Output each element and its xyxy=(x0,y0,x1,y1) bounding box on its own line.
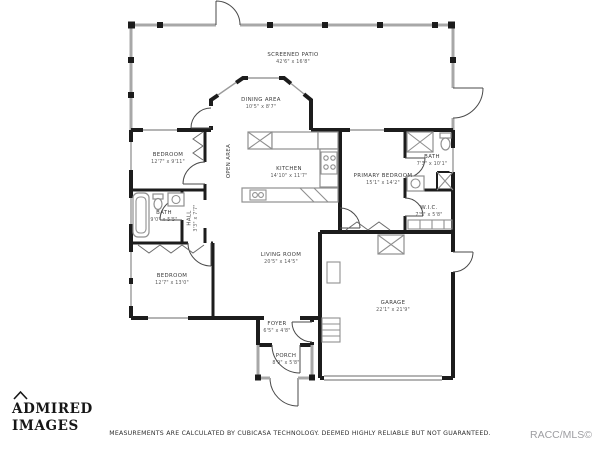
svg-text:BATH: BATH xyxy=(156,210,172,216)
svg-text:KITCHEN: KITCHEN xyxy=(276,166,302,172)
svg-text:10'5" x 8'7": 10'5" x 8'7" xyxy=(246,104,277,110)
room-label-bath-1: BATH 9'0" x 5'5" xyxy=(150,210,177,223)
shower-icon xyxy=(407,132,433,152)
room-label-dining-area: DINING AREA 10'5" x 8'7" xyxy=(241,97,281,110)
toilet-icon xyxy=(440,133,451,150)
garage-door xyxy=(324,373,442,383)
porch-door-arc xyxy=(270,378,298,406)
svg-text:FOYER: FOYER xyxy=(267,321,286,327)
svg-text:BEDROOM: BEDROOM xyxy=(153,152,184,158)
bedroom2-closet-icon xyxy=(138,245,204,253)
svg-text:3'3" x 7'7": 3'3" x 7'7" xyxy=(193,204,199,231)
svg-text:PORCH: PORCH xyxy=(276,353,297,359)
bedroom2-door-arc xyxy=(188,243,211,266)
patio-side-door-arc xyxy=(453,88,483,118)
bedroom1-door-arc xyxy=(183,162,205,184)
refrigerator-icon xyxy=(248,132,272,149)
room-label-bedroom-2: BEDROOM 12'7" x 13'0" xyxy=(155,273,189,286)
patio-screen-door-arc xyxy=(216,1,240,25)
svg-text:BEDROOM: BEDROOM xyxy=(157,273,188,279)
kitchen-counter xyxy=(272,132,318,149)
floor-plan-page: SCREENED PATIO 42'6" x 16'8" DINING AREA… xyxy=(0,0,600,450)
svg-text:BATH: BATH xyxy=(424,154,440,160)
svg-text:22'1" x 21'9": 22'1" x 21'9" xyxy=(376,307,410,313)
svg-text:15'1" x 14'2": 15'1" x 14'2" xyxy=(366,180,400,186)
room-label-hall: HALL 3'3" x 7'7" xyxy=(187,204,200,231)
stairs-icon xyxy=(322,318,340,342)
room-label-screened-patio: SCREENED PATIO 42'6" x 16'8" xyxy=(267,52,318,65)
svg-text:7'3" x 10'1": 7'3" x 10'1" xyxy=(417,161,448,167)
svg-text:DINING AREA: DINING AREA xyxy=(241,97,281,103)
mls-watermark: RACC/MLS© xyxy=(530,429,592,441)
kitchen-corner-counter xyxy=(318,132,338,149)
room-label-living-room: LIVING ROOM 20'5" x 14'5" xyxy=(261,252,302,265)
svg-text:20'5" x 14'5": 20'5" x 14'5" xyxy=(264,259,298,265)
kitchen-island xyxy=(242,188,338,202)
svg-text:PRIMARY BEDROOM: PRIMARY BEDROOM xyxy=(354,173,413,179)
svg-text:9'0" x 5'5": 9'0" x 5'5" xyxy=(150,217,177,223)
wic-shelf xyxy=(408,220,452,229)
svg-text:OPEN AREA: OPEN AREA xyxy=(226,144,232,178)
floor-plan-drawing: SCREENED PATIO 42'6" x 16'8" DINING AREA… xyxy=(0,0,600,450)
room-label-open-area: OPEN AREA xyxy=(226,144,232,178)
bedroom1-closet-icon xyxy=(193,132,203,160)
svg-text:42'6" x 16'8": 42'6" x 16'8" xyxy=(276,59,310,65)
patio-wall xyxy=(131,25,453,130)
primary-bedroom-door-arc xyxy=(340,208,360,228)
logo-line2: IMAGES xyxy=(12,418,79,434)
toilet-icon xyxy=(153,194,163,210)
svg-text:HALL: HALL xyxy=(187,210,193,225)
svg-text:6'5" x 4'8": 6'5" x 4'8" xyxy=(263,328,290,334)
room-label-foyer: FOYER 6'5" x 4'8" xyxy=(263,321,290,334)
linen-closet-icon xyxy=(437,172,453,190)
footer: MEASUREMENTS ARE CALCULATED BY CUBICASA … xyxy=(109,429,592,441)
dining-patio-door-arc xyxy=(191,108,211,128)
room-label-garage: GARAGE 22'1" x 21'9" xyxy=(376,300,410,313)
logo-roof-icon xyxy=(14,392,27,399)
svg-text:W.I.C.: W.I.C. xyxy=(420,205,437,211)
interior-walls xyxy=(131,130,453,318)
water-heater-icon xyxy=(378,235,404,254)
svg-text:12'7" x 9'11": 12'7" x 9'11" xyxy=(151,159,185,165)
room-label-wic: W.I.C. 7'5" x 5'8" xyxy=(415,205,442,218)
fireplace-box xyxy=(327,262,340,283)
logo-admired-images: ADMIRED IMAGES xyxy=(11,392,93,434)
disclaimer-text: MEASUREMENTS ARE CALCULATED BY CUBICASA … xyxy=(109,430,490,437)
svg-text:LIVING ROOM: LIVING ROOM xyxy=(261,252,302,258)
primary-closet-icon xyxy=(346,222,390,230)
interior-wall-path xyxy=(131,130,453,318)
logo-line1: ADMIRED xyxy=(11,401,93,417)
front-door-arc xyxy=(272,345,300,373)
svg-text:12'7" x 13'0": 12'7" x 13'0" xyxy=(155,280,189,286)
bathtub-icon xyxy=(133,193,149,237)
room-label-bath-2: BATH 7'3" x 10'1" xyxy=(417,154,448,167)
room-label-bedroom-1: BEDROOM 12'7" x 9'11" xyxy=(151,152,185,165)
svg-text:7'5" x 5'8": 7'5" x 5'8" xyxy=(415,212,442,218)
door-arcs xyxy=(160,108,473,406)
svg-text:GARAGE: GARAGE xyxy=(381,300,406,306)
sink-icon xyxy=(168,193,184,206)
svg-text:14'10" x 11'7": 14'10" x 11'7" xyxy=(270,173,307,179)
screened-patio-structure xyxy=(128,1,483,130)
svg-text:8'9" x 5'8": 8'9" x 5'8" xyxy=(272,360,299,366)
room-label-kitchen: KITCHEN 14'10" x 11'7" xyxy=(270,166,307,179)
svg-text:SCREENED PATIO: SCREENED PATIO xyxy=(267,52,318,58)
